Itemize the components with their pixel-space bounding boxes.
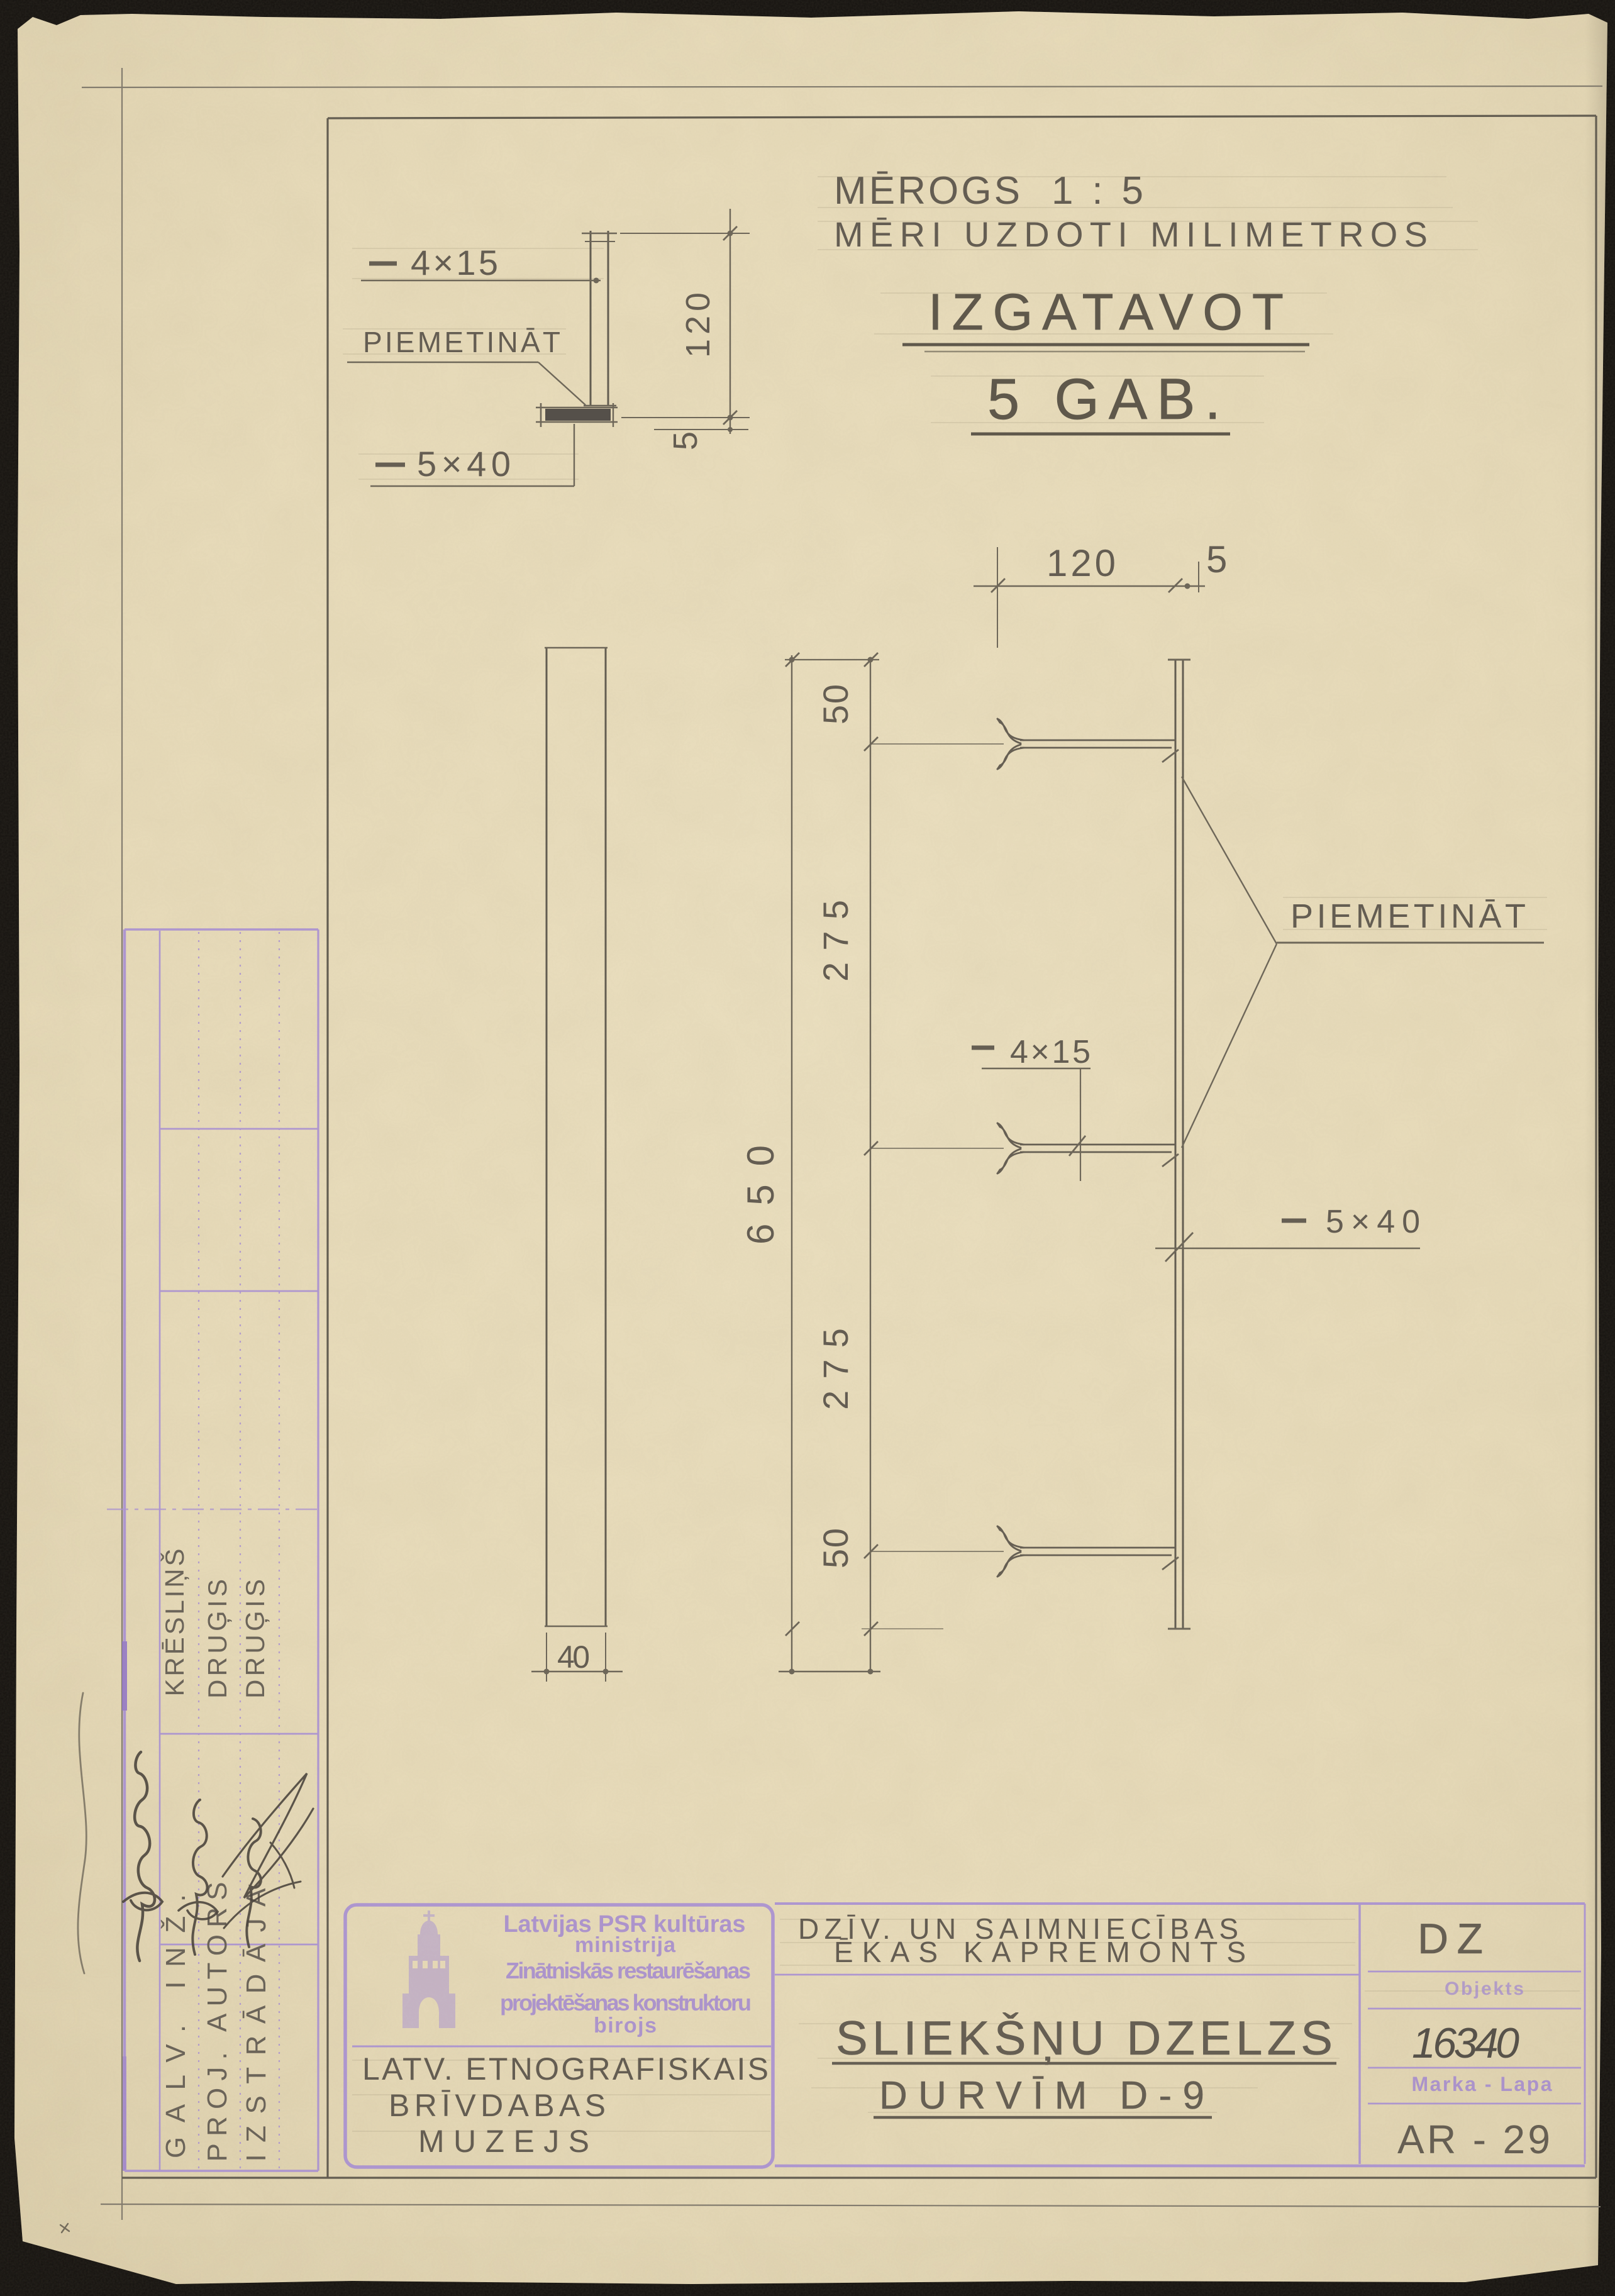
svg-text:275: 275 <box>816 900 855 982</box>
svg-text:1:5: 1:5 <box>1052 169 1143 213</box>
svg-text:BRĪVDABAS: BRĪVDABAS <box>389 2088 606 2123</box>
svg-text:DRUĢIS: DRUĢIS <box>203 1579 232 1699</box>
svg-text:AR - 29: AR - 29 <box>1397 2117 1550 2162</box>
svg-text:ministrija: ministrija <box>575 1933 676 1957</box>
svg-text:IZGATAVOT: IZGATAVOT <box>928 284 1284 341</box>
svg-text:SLIEKŠŅU DZELZS: SLIEKŠŅU DZELZS <box>836 2012 1333 2065</box>
svg-text:Marka - Lapa: Marka - Lapa <box>1412 2073 1552 2095</box>
svg-text:KRĒSLIŅŠ: KRĒSLIŅŠ <box>160 1549 189 1697</box>
svg-text:40: 40 <box>557 1639 590 1675</box>
svg-text:5: 5 <box>667 431 704 450</box>
svg-text:650: 650 <box>740 1145 782 1245</box>
svg-text:5: 5 <box>1206 538 1227 580</box>
svg-text:LATV. ETNOGRAFISKAIS: LATV. ETNOGRAFISKAIS <box>362 2051 769 2087</box>
svg-text:50: 50 <box>816 684 855 724</box>
svg-text:birojs: birojs <box>594 2014 657 2038</box>
svg-text:PIEMETINĀT: PIEMETINĀT <box>1290 897 1526 935</box>
svg-text:120: 120 <box>679 292 717 358</box>
svg-text:PIEMETINĀT: PIEMETINĀT <box>363 326 560 358</box>
svg-text:DRUĢIS: DRUĢIS <box>240 1579 270 1699</box>
svg-text:120: 120 <box>1046 542 1116 584</box>
svg-text:275: 275 <box>816 1328 855 1410</box>
svg-text:projektēšanas konstruktoru: projektēšanas konstruktoru <box>500 1990 752 2016</box>
svg-text:50: 50 <box>816 1528 855 1568</box>
svg-text:16340: 16340 <box>1412 2019 1519 2067</box>
svg-text:Zinātniskās restaurēšanas: Zinātniskās restaurēšanas <box>506 1958 751 1983</box>
